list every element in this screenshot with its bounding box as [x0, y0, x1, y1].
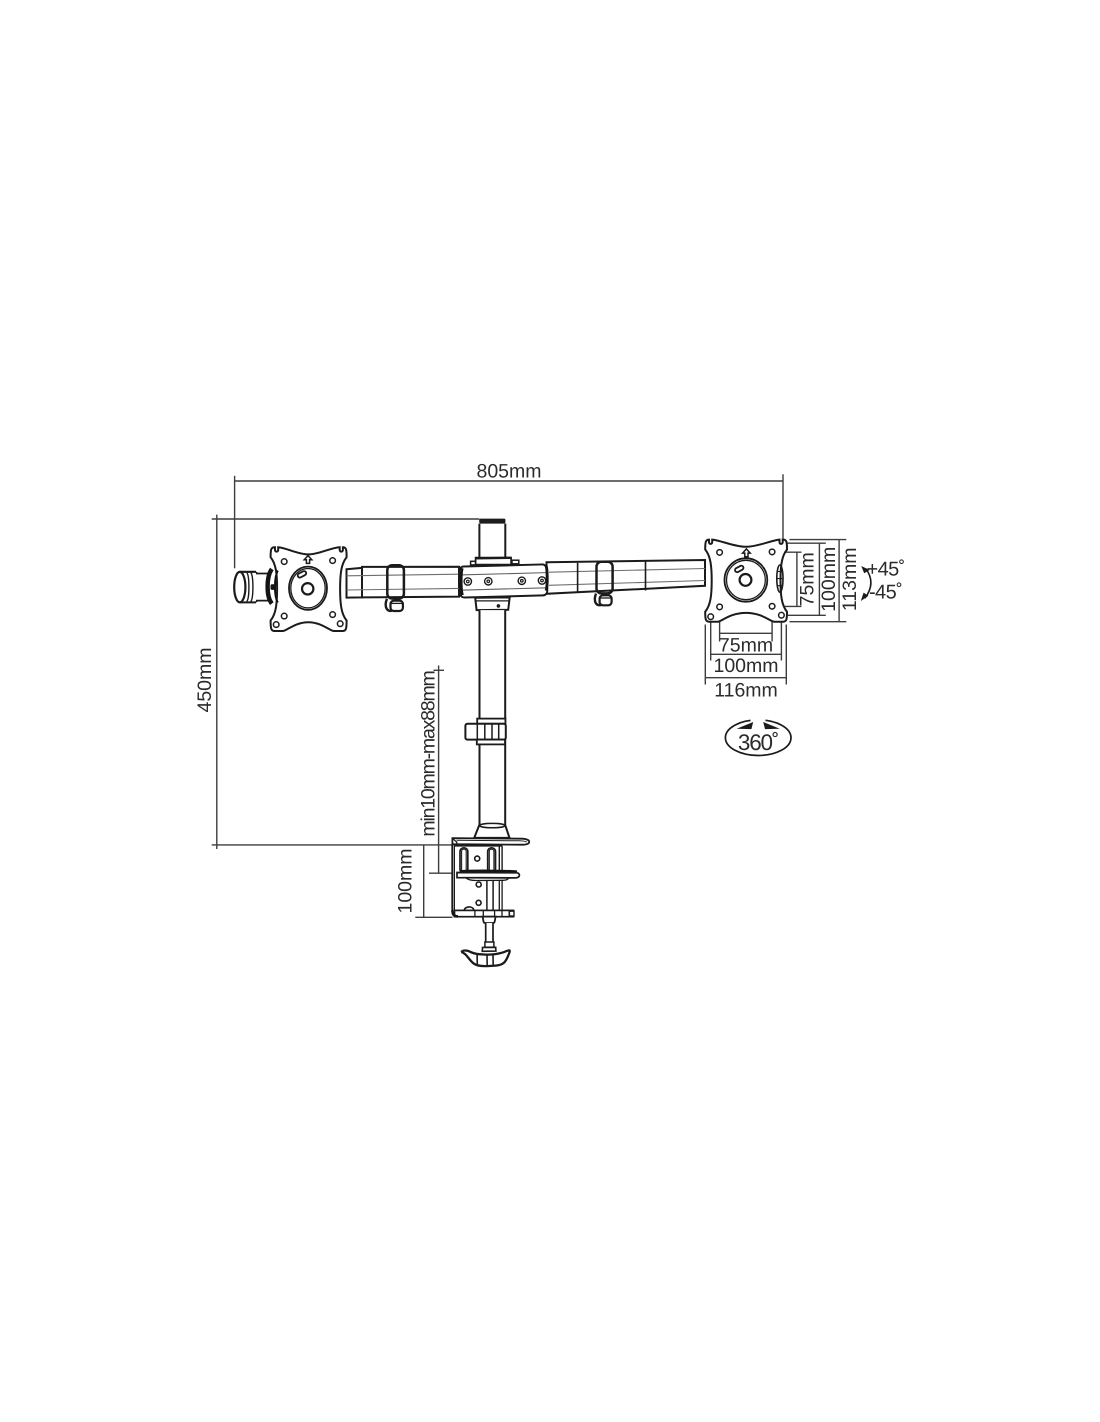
- svg-text:+45˚: +45˚: [866, 559, 904, 581]
- svg-text:75mm: 75mm: [719, 634, 773, 656]
- svg-text:805mm: 805mm: [476, 460, 541, 482]
- svg-text:-45˚: -45˚: [869, 582, 902, 604]
- svg-text:min10mm-max88mm: min10mm-max88mm: [417, 671, 439, 836]
- svg-text:100mm: 100mm: [818, 547, 840, 612]
- svg-text:116mm: 116mm: [714, 679, 778, 701]
- svg-text:100mm: 100mm: [713, 655, 778, 677]
- svg-text:113mm: 113mm: [839, 548, 861, 612]
- svg-text:100mm: 100mm: [394, 848, 416, 913]
- svg-text:360˚: 360˚: [738, 730, 778, 755]
- svg-text:75mm: 75mm: [796, 552, 818, 606]
- svg-text:450mm: 450mm: [194, 647, 216, 712]
